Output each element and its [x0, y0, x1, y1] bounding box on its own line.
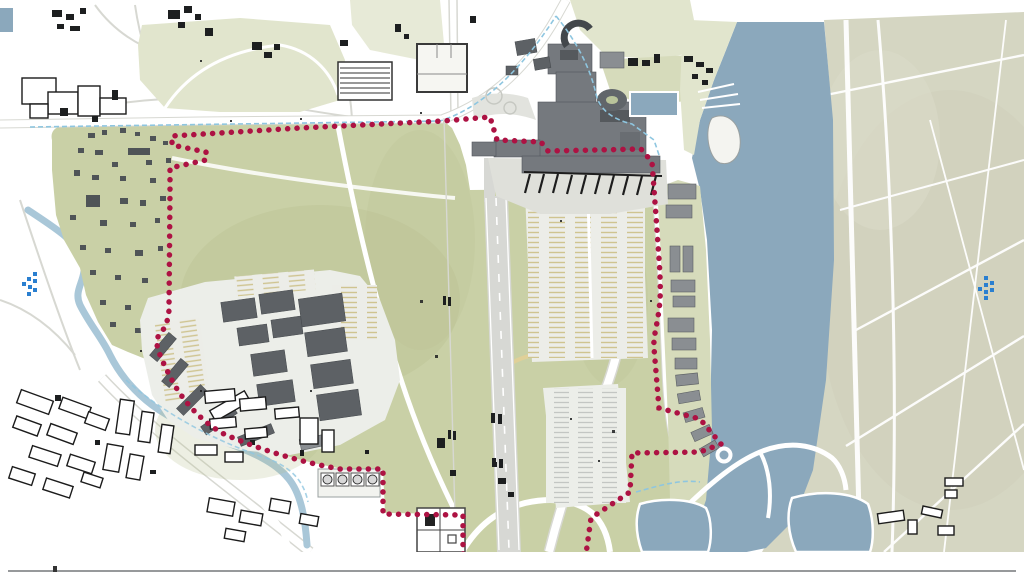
big-hall: [417, 44, 467, 92]
pond-east: [789, 493, 873, 552]
bottom-divider-tick: [53, 566, 57, 572]
grandstand: [338, 62, 392, 100]
site-map-page: [0, 0, 1024, 576]
bottom-divider: [0, 552, 1024, 576]
harbor-channel: [657, 20, 834, 554]
harbor-basin: [630, 92, 678, 116]
waterway-edge: [0, 8, 13, 32]
fuel-tank-farm: [318, 469, 380, 497]
cargo-area: [140, 270, 400, 455]
site-plan-map: [0, 0, 1024, 576]
pond-west: [637, 500, 711, 552]
